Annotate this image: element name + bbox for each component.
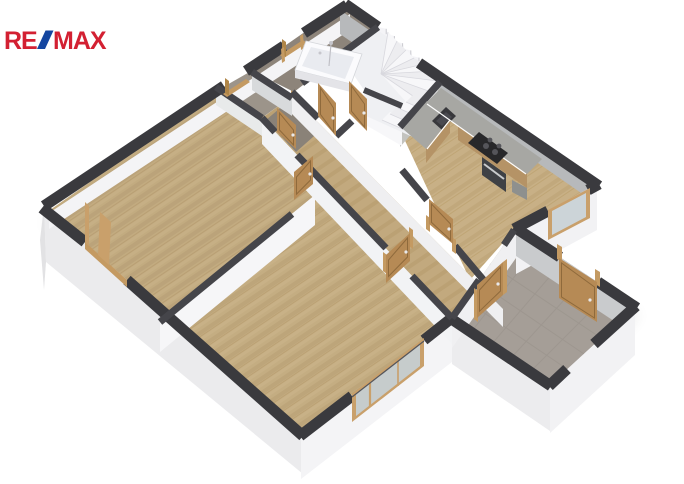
svg-text:RE: RE (4, 27, 37, 55)
svg-text:MAX: MAX (53, 27, 107, 55)
